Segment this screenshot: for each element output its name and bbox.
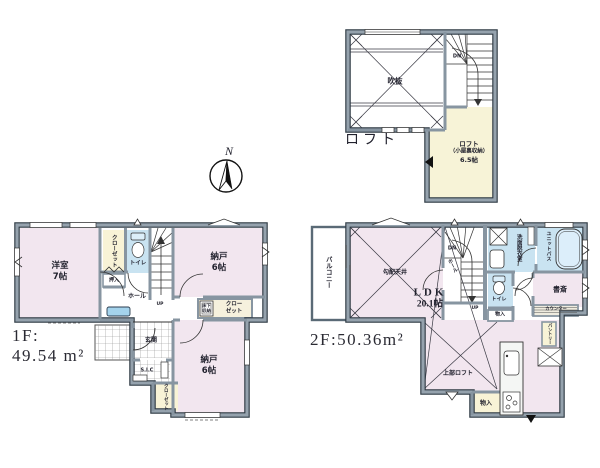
pantry-label: パントリー <box>547 323 551 345</box>
compass-icon <box>210 160 242 192</box>
room-nando-upper-name: 納戸 <box>210 253 227 262</box>
room-ldk-name: LDK <box>414 288 447 299</box>
room-nando-upper-size: 6帖 <box>212 264 226 273</box>
stairs2-dn-label: DN <box>448 247 456 252</box>
room-unit-bath-label: ユニットバス <box>546 231 551 261</box>
storage-upper-label: 物入 <box>495 313 505 318</box>
loft-room-label-1: ロフト <box>459 141 479 148</box>
loft-plan <box>348 30 495 201</box>
storage-lower-label: 物入 <box>480 401 492 407</box>
room-yoshitsu-size: 7帖 <box>53 273 67 282</box>
room-nando-lower-name: 納戸 <box>200 356 217 365</box>
room-genkan-label: 玄関 <box>145 338 157 344</box>
compass-north-label: N <box>225 145 233 157</box>
first-floor-plan <box>15 219 270 420</box>
loft-void-label: 吹抜 <box>388 77 403 85</box>
room-closet-bottom-label: クローゼット <box>163 384 168 411</box>
loft-stairs-dn-label: DN <box>453 55 461 60</box>
room-yoshitsu-name: 洋室 <box>51 262 68 271</box>
floor2-area-label: 2F:50.36m² <box>310 330 404 350</box>
room-washroom-label: 洗面脱衣室 <box>515 234 521 262</box>
room-study-label: 書斎 <box>553 287 567 294</box>
stairs2-up-label: UP <box>472 307 479 312</box>
room-closet-mid-label-1: クロー <box>226 302 243 308</box>
floorplan-graphics <box>0 0 600 468</box>
room-toilet2-label: トイレ <box>491 298 506 303</box>
loft-room-label-3: 6.5帖 <box>460 157 478 164</box>
room-ldk-size: 20.1帖 <box>417 300 443 310</box>
counter-label: カウンター <box>545 308 566 312</box>
underfloor-storage-label-2: 収納 <box>202 309 210 313</box>
loft-title: ロフト <box>345 134 399 148</box>
room-closet-top-label: クローゼット <box>110 235 116 268</box>
loft-room-label-2: （小屋裏収納） <box>450 149 489 155</box>
upper-loft-label: 上部ロフト <box>443 371 473 377</box>
sloped-ceiling-label: 勾配天井 <box>383 270 407 276</box>
room-oshiire-label: 押入 <box>109 279 119 284</box>
floor1-area-label-line2: 49.54 m² <box>12 346 85 366</box>
floor1-area-label-line1: 1F: <box>12 326 39 346</box>
room-nando-lower-size: 6帖 <box>202 367 216 376</box>
room-balcony-label: バルコニー <box>325 256 332 289</box>
room-closet-mid-label-2: ゼット <box>226 309 243 315</box>
room-toilet1-label: トイレ <box>130 261 147 267</box>
stairs1-up-label: UP <box>157 303 164 308</box>
floorplan-image: N ロフト 吹抜 DN ロフト （小屋裏収納） 6.5帖 1F: 49.54 m… <box>0 0 600 468</box>
room-hall1-label: ホール <box>128 294 146 300</box>
room-sic-label: S.I.C <box>141 369 154 374</box>
